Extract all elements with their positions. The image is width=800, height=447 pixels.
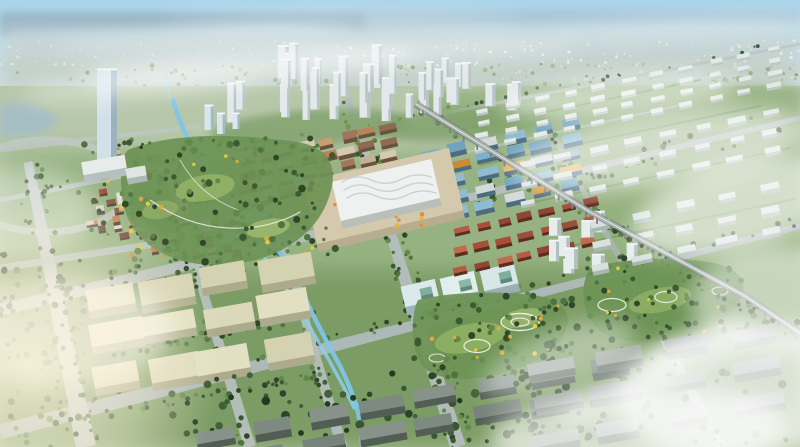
- scene-paint: [0, 9, 800, 447]
- aerial-city-rendering: [0, 0, 800, 447]
- sky-streak: [160, 9, 520, 27]
- sun-glare-lower-left: [0, 180, 310, 447]
- rendering-canvas: [0, 0, 800, 447]
